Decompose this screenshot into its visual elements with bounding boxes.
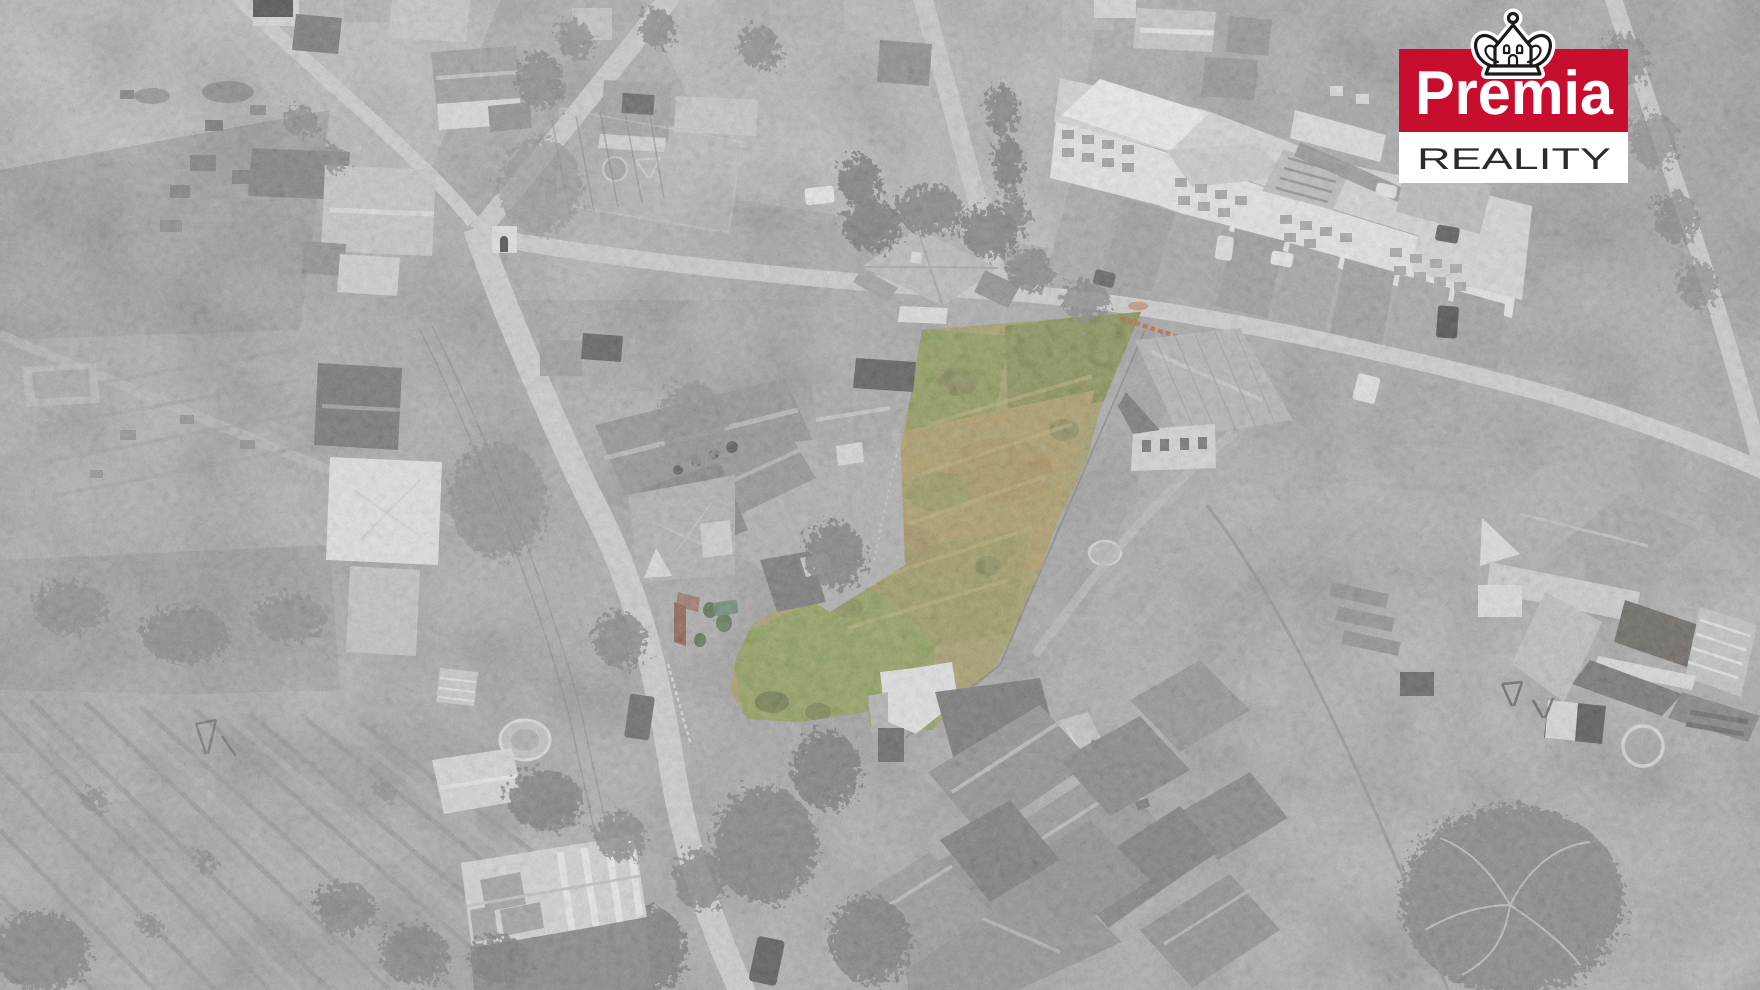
svg-text:REALITY: REALITY <box>1417 143 1611 176</box>
